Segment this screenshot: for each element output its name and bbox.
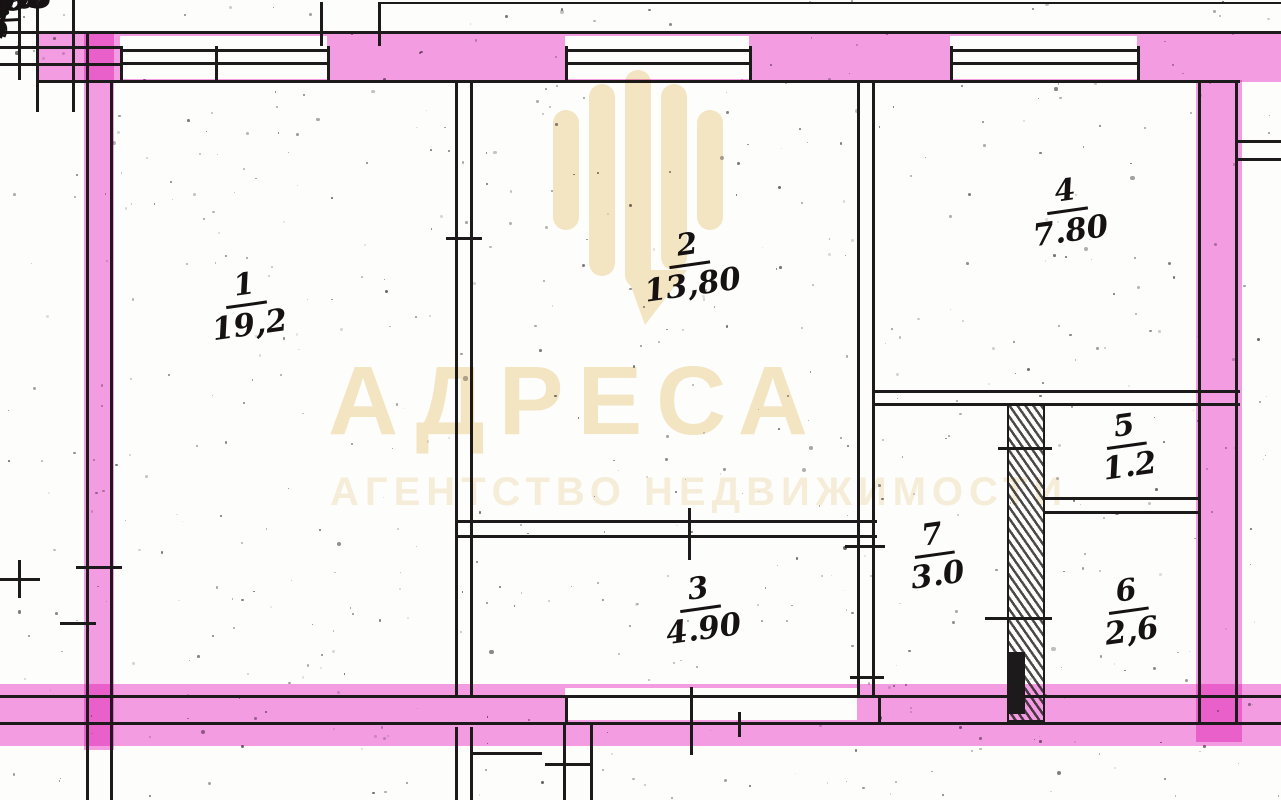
scan-speckle: [208, 782, 211, 785]
scan-speckle: [1175, 795, 1177, 797]
scan-speckle: [667, 575, 669, 577]
scan-speckle: [232, 598, 234, 600]
scan-speckle: [243, 402, 245, 404]
scan-speckle: [851, 645, 853, 647]
scan-speckle: [1164, 778, 1166, 780]
scan-speckle: [1069, 334, 1071, 336]
wall-line: [327, 46, 330, 80]
window-opening: [950, 36, 1137, 79]
scan-speckle: [1023, 120, 1026, 123]
scan-speckle: [949, 215, 952, 218]
wall-line: [872, 80, 875, 695]
scan-speckle: [1100, 655, 1103, 658]
scan-speckle: [1173, 276, 1176, 279]
scan-speckle: [215, 262, 216, 263]
scan-speckle: [893, 106, 894, 107]
scan-speckle: [132, 298, 134, 300]
scan-speckle: [1185, 679, 1188, 682]
scan-speckle: [1114, 663, 1116, 665]
scan-speckle: [959, 413, 961, 415]
scan-speckle: [896, 665, 897, 666]
scan-speckle: [757, 604, 759, 606]
scan-speckle: [473, 282, 475, 284]
wall-line: [563, 722, 566, 800]
scan-speckle: [968, 193, 971, 196]
scan-speckle: [1061, 667, 1062, 668]
scan-speckle: [431, 228, 433, 230]
wall-line: [1237, 140, 1281, 143]
wall-line: [120, 49, 330, 52]
door-opening: [565, 688, 857, 720]
scan-speckle: [680, 660, 682, 662]
scan-speckle: [1015, 373, 1016, 374]
scan-speckle: [747, 144, 748, 145]
room-5-label: 5 1.2: [1095, 408, 1158, 486]
scan-speckle: [988, 383, 990, 385]
scan-speckle: [942, 794, 944, 796]
scan-speckle: [950, 309, 951, 310]
scan-speckle: [648, 679, 650, 681]
scan-speckle: [855, 749, 858, 752]
scan-speckle: [176, 514, 178, 516]
scan-speckle: [344, 673, 346, 675]
scan-speckle: [61, 651, 63, 653]
scan-speckle: [1149, 330, 1151, 332]
scan-speckle: [1013, 341, 1015, 343]
scan-speckle: [187, 119, 190, 122]
wall-line: [36, 0, 39, 112]
scan-speckle: [917, 318, 919, 320]
scan-speckle: [1148, 502, 1151, 505]
scan-speckle: [1137, 286, 1140, 289]
wall-line: [878, 695, 881, 722]
scan-speckle: [908, 650, 910, 652]
wall-line: [76, 566, 122, 569]
scan-speckle: [252, 379, 254, 381]
scan-speckle: [925, 157, 926, 158]
scan-speckle: [682, 329, 684, 331]
scan-speckle: [1083, 146, 1084, 147]
scan-speckle: [611, 753, 613, 755]
scan-speckle: [1153, 667, 1156, 670]
scan-speckle: [59, 780, 60, 781]
scan-speckle: [514, 605, 516, 607]
scan-speckle: [1163, 441, 1165, 443]
scan-speckle: [807, 142, 809, 144]
scan-speckle: [485, 769, 487, 771]
scan-speckle: [726, 325, 728, 327]
scan-speckle: [154, 203, 155, 204]
scan-speckle: [283, 221, 285, 223]
scan-speckle: [671, 797, 673, 799]
wall-line: [72, 0, 75, 112]
scan-speckle: [979, 748, 981, 750]
wall-line: [1198, 80, 1201, 722]
wall-line: [950, 46, 953, 80]
scan-speckle: [460, 631, 462, 633]
scan-speckle: [1082, 567, 1084, 569]
scan-speckle: [246, 132, 249, 135]
room-number: 1: [222, 268, 267, 309]
scan-speckle: [13, 773, 16, 776]
scan-speckle: [966, 262, 969, 265]
scan-speckle: [397, 528, 399, 530]
wall-line: [950, 62, 1140, 65]
scan-speckle: [828, 253, 831, 256]
scan-speckle: [1268, 132, 1270, 134]
scan-speckle: [1130, 176, 1134, 180]
scan-speckle: [560, 10, 564, 14]
scan-speckle: [879, 126, 881, 128]
scan-speckle: [296, 133, 299, 136]
scan-speckle: [1190, 112, 1192, 114]
scan-speckle: [956, 400, 957, 401]
scan-speckle: [1099, 570, 1101, 572]
wall-line: [0, 722, 1281, 725]
scan-speckle: [146, 157, 148, 159]
room-number: 5: [1102, 409, 1147, 450]
scan-speckle: [910, 175, 911, 176]
scan-speckle: [696, 666, 698, 668]
room-number: 3: [676, 572, 721, 613]
wall-line: [875, 390, 1240, 393]
scan-speckle: [843, 200, 845, 202]
scan-speckle: [762, 247, 763, 248]
scan-speckle: [125, 520, 126, 521]
scan-speckle: [1096, 347, 1098, 349]
scan-speckle: [896, 373, 899, 376]
scan-speckle: [778, 186, 781, 189]
scan-speckle: [259, 354, 262, 357]
scan-speckle: [246, 257, 249, 260]
scan-speckle: [28, 635, 30, 637]
scan-speckle: [131, 203, 133, 205]
room-number: 6: [1104, 574, 1149, 615]
scan-speckle: [217, 154, 218, 155]
scan-speckle: [1243, 285, 1246, 288]
scan-speckle: [73, 452, 75, 454]
scan-speckle: [636, 603, 639, 606]
scan-speckle: [178, 600, 179, 601]
scan-speckle: [1039, 152, 1042, 155]
wall-line: [565, 62, 752, 65]
scan-speckle: [448, 150, 451, 153]
scan-speckle: [995, 569, 997, 571]
scan-speckle: [1091, 259, 1092, 260]
scan-speckle: [1084, 553, 1087, 556]
scan-speckle: [1084, 247, 1088, 251]
wall-line: [446, 237, 482, 240]
scan-speckle: [1168, 262, 1171, 265]
scan-speckle: [270, 606, 272, 608]
scan-speckle: [218, 232, 220, 234]
wall-line: [215, 46, 218, 80]
scan-speckle: [899, 603, 900, 604]
wall-line: [470, 727, 473, 800]
scan-speckle: [895, 781, 897, 783]
scan-speckle: [1038, 98, 1039, 99]
scan-speckle: [1267, 18, 1269, 20]
scan-speckle: [430, 149, 432, 151]
scan-speckle: [161, 551, 163, 553]
scan-speckle: [1259, 401, 1261, 403]
scan-speckle: [212, 635, 214, 637]
scan-speckle: [846, 781, 848, 783]
scan-speckle: [1124, 670, 1126, 672]
scan-speckle: [983, 144, 986, 147]
scan-speckle: [1075, 359, 1076, 360]
scan-speckle: [389, 326, 390, 327]
scan-speckle: [303, 94, 305, 96]
scan-speckle: [846, 355, 849, 358]
scan-speckle: [1158, 330, 1160, 332]
scan-speckle: [288, 152, 289, 153]
scan-speckle: [1250, 528, 1252, 530]
scan-speckle: [31, 263, 32, 264]
scan-speckle: [1278, 795, 1280, 797]
scan-speckle: [1099, 125, 1101, 127]
scan-speckle: [333, 630, 334, 631]
scan-speckle: [361, 748, 363, 750]
scan-speckle: [212, 395, 213, 396]
scan-speckle: [462, 591, 463, 592]
scan-speckle: [952, 621, 955, 624]
scan-speckle: [241, 599, 244, 602]
room-3-label: 3 4.90: [659, 569, 744, 650]
scan-speckle: [796, 557, 798, 559]
scan-speckle: [334, 572, 335, 573]
scan-speckle: [309, 13, 312, 16]
scan-speckle: [593, 20, 596, 23]
wall-line: [0, 695, 1281, 698]
scan-speckle: [1045, 260, 1047, 262]
scan-speckle: [982, 121, 984, 123]
scan-speckle: [429, 315, 431, 317]
scan-speckle: [320, 667, 322, 669]
scan-speckle: [18, 610, 22, 614]
scan-speckle: [489, 650, 493, 654]
scan-speckle: [761, 620, 763, 622]
scan-speckle: [846, 609, 847, 610]
wall-line: [120, 46, 123, 80]
scan-speckle: [229, 6, 232, 9]
scan-speckle: [505, 15, 508, 18]
scan-speckle: [400, 572, 402, 574]
wall-line: [845, 545, 885, 548]
wall-line: [1237, 158, 1281, 161]
wall-line: [688, 508, 691, 560]
scan-speckle: [312, 624, 313, 625]
scan-speckle: [962, 320, 964, 322]
scan-speckle: [406, 782, 408, 784]
scan-speckle: [1065, 256, 1067, 258]
scan-speckle: [571, 586, 573, 588]
scan-speckle: [486, 183, 489, 186]
scan-speckle: [493, 151, 497, 155]
scan-speckle: [476, 561, 478, 563]
wall-line: [120, 62, 330, 65]
scan-speckle: [399, 588, 402, 591]
scan-speckle: [337, 542, 341, 546]
scan-speckle: [379, 619, 382, 622]
scan-speckle: [1103, 517, 1105, 519]
room-1-label: 1 19,2: [205, 265, 290, 346]
scan-speckle: [882, 439, 884, 441]
room-area: 7.80: [1031, 210, 1110, 253]
scan-speckle: [1238, 763, 1239, 764]
scan-speckle: [536, 100, 539, 103]
scan-speckle: [1269, 115, 1271, 117]
wall-line: [565, 695, 568, 722]
scan-speckle: [182, 521, 183, 522]
wall-line: [565, 49, 752, 52]
scan-speckle: [1058, 444, 1061, 447]
scan-speckle: [724, 779, 727, 782]
scan-speckle: [1213, 10, 1216, 13]
scan-speckle: [266, 528, 268, 530]
scan-speckle: [669, 23, 672, 26]
room-area: 3.0: [909, 555, 967, 595]
room-7-label: 7 3.0: [903, 517, 966, 595]
scan-speckle: [840, 142, 842, 144]
wall-line: [378, 2, 1281, 4]
scan-speckle: [1219, 15, 1221, 17]
scan-speckle: [384, 279, 385, 280]
scan-speckle: [470, 23, 472, 25]
scan-speckle: [321, 654, 323, 656]
scan-speckle: [129, 454, 131, 456]
scan-speckle: [1080, 504, 1081, 505]
scan-speckle: [812, 284, 814, 286]
scan-speckle: [765, 587, 767, 589]
scan-speckle: [331, 197, 333, 199]
room-area: 4.90: [664, 608, 743, 651]
scan-speckle: [843, 590, 844, 591]
scan-speckle: [971, 750, 973, 752]
wall-line: [378, 2, 381, 46]
scan-speckle: [629, 625, 631, 627]
wall-line: [1235, 83, 1238, 722]
scan-speckle: [827, 782, 828, 783]
scan-speckle: [948, 435, 950, 437]
scan-speckle: [206, 131, 207, 132]
scan-speckle: [1099, 753, 1101, 755]
wall-line: [749, 46, 752, 80]
scan-speckle: [1130, 163, 1132, 165]
scan-speckle: [520, 524, 522, 526]
scan-speckle: [1032, 8, 1034, 10]
scan-speckle: [13, 193, 16, 196]
watermark-subtitle: АГЕНТСТВО НЕДВИЖИМОСТИ: [330, 472, 1068, 512]
scan-speckle: [1053, 254, 1056, 257]
scan-speckle: [234, 192, 235, 193]
scan-speckle: [658, 341, 660, 343]
scan-speckle: [278, 132, 279, 133]
scan-speckle: [1128, 385, 1130, 387]
wall-line: [470, 752, 542, 755]
scan-speckle: [203, 218, 205, 220]
scan-speckle: [255, 178, 256, 179]
scan-speckle: [291, 580, 292, 581]
scan-speckle: [799, 128, 801, 130]
scan-speckle: [479, 794, 480, 795]
scan-speckle: [145, 475, 148, 478]
scan-speckle: [955, 610, 958, 613]
scan-speckle: [273, 7, 274, 8]
scan-speckle: [897, 398, 899, 400]
scan-speckle: [307, 299, 308, 300]
scan-speckle: [426, 110, 427, 111]
room-area: 1.2: [1101, 446, 1159, 486]
room-number: 4: [1043, 174, 1088, 215]
scan-speckle: [864, 555, 866, 557]
scan-speckle: [676, 525, 677, 526]
scan-speckle: [366, 162, 368, 164]
wall-line: [0, 31, 1281, 34]
scan-speckle: [1134, 257, 1136, 259]
scan-speckle: [666, 329, 667, 330]
scan-speckle: [527, 533, 528, 534]
scan-speckle: [847, 515, 848, 516]
scan-speckle: [115, 464, 117, 466]
scan-speckle: [253, 591, 255, 593]
scan-speckle: [1189, 651, 1190, 652]
wall-line: [320, 2, 323, 46]
scan-speckle: [41, 460, 43, 462]
window-opening: [120, 36, 327, 79]
scan-speckle: [542, 113, 544, 115]
scan-speckle: [8, 410, 9, 411]
wall-line: [455, 727, 458, 800]
scan-speckle: [777, 565, 778, 566]
scan-speckle: [509, 222, 512, 225]
scan-speckle: [597, 582, 599, 584]
scan-speckle: [168, 374, 170, 376]
wall-line: [738, 712, 741, 737]
scan-speckle: [776, 268, 778, 270]
scan-speckle: [1144, 127, 1146, 129]
scan-speckle: [24, 678, 26, 680]
scan-speckle: [648, 9, 651, 12]
scan-speckle: [486, 152, 488, 154]
scan-speckle: [1265, 455, 1267, 457]
scan-speckle: [130, 378, 132, 380]
scan-speckle: [1051, 647, 1055, 651]
scan-speckle: [55, 612, 58, 615]
scan-speckle: [276, 106, 279, 109]
scan-speckle: [296, 333, 298, 335]
scan-speckle: [1199, 751, 1200, 752]
scan-speckle: [275, 91, 276, 92]
scan-speckle: [149, 795, 151, 797]
wall-line: [60, 622, 96, 625]
scan-speckle: [298, 349, 300, 351]
scan-speckle: [1135, 313, 1137, 315]
scan-speckle: [280, 374, 282, 376]
scan-speckle: [197, 655, 200, 658]
scan-speckle: [193, 193, 196, 196]
scan-speckle: [931, 771, 932, 772]
scan-speckle: [225, 441, 228, 444]
scan-speckle: [33, 50, 35, 52]
scan-speckle: [74, 196, 76, 198]
scan-speckle: [247, 673, 249, 675]
scan-speckle: [851, 239, 853, 241]
wall-line: [690, 687, 693, 755]
scan-speckle: [891, 328, 892, 329]
scan-speckle: [117, 131, 120, 134]
scan-speckle: [316, 118, 320, 122]
